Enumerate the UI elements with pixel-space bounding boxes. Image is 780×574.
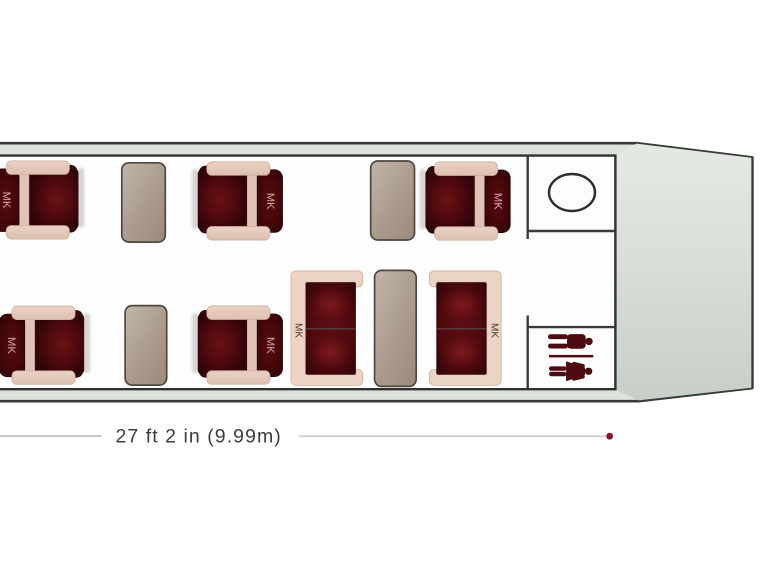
svg-text:27 ft 2 in (9.99m): 27 ft 2 in (9.99m) (116, 426, 282, 448)
svg-text:MK: MK (0, 192, 12, 209)
svg-text:MK: MK (491, 193, 503, 210)
svg-text:MK: MK (489, 323, 500, 338)
svg-text:MK: MK (5, 337, 17, 354)
svg-text:MK: MK (264, 193, 276, 210)
svg-text:MK: MK (293, 323, 304, 338)
svg-text:MK: MK (264, 337, 276, 354)
